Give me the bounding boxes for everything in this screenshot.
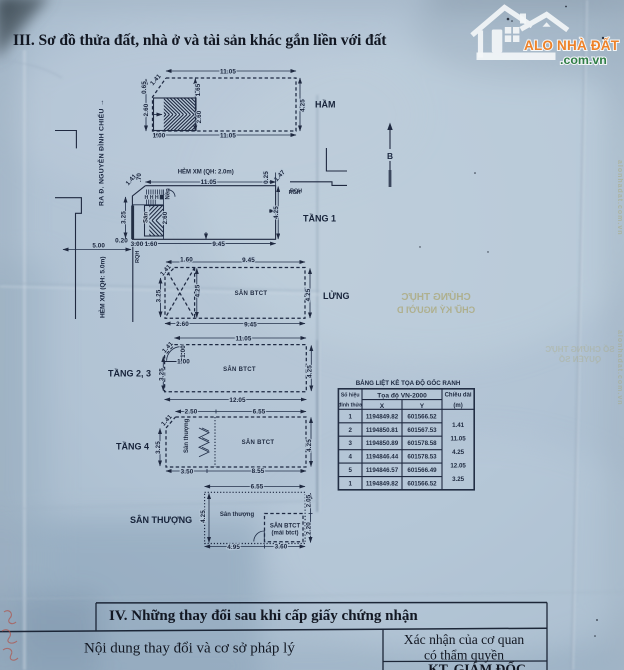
svg-text:SÂN BTCT: SÂN BTCT: [270, 523, 301, 530]
svg-text:1.60: 1.60: [145, 241, 158, 248]
svg-text:3.25: 3.25: [156, 289, 163, 302]
svg-text:1194846.44: 1194846.44: [366, 454, 399, 461]
svg-text:3.25: 3.25: [452, 476, 465, 483]
svg-text:9.45: 9.45: [244, 321, 257, 328]
svg-text:0.65: 0.65: [141, 81, 148, 94]
svg-text:1: 1: [348, 481, 352, 488]
svg-text:.com.vn: .com.vn: [560, 53, 607, 67]
svg-text:3.60: 3.60: [275, 544, 288, 551]
svg-text:11.05: 11.05: [220, 69, 236, 76]
svg-text:4.25: 4.25: [300, 99, 307, 112]
svg-text:6.55: 6.55: [251, 484, 264, 491]
svg-text:CHỮ KÝ NGƯỜI D: CHỮ KÝ NGƯỜI D: [396, 304, 475, 315]
svg-text:RQH: RQH: [135, 251, 141, 263]
svg-text:III. Sơ đồ thửa đất, nhà ở và: III. Sơ đồ thửa đất, nhà ở và tài sản kh…: [13, 32, 387, 49]
svg-text:601578.58: 601578.58: [407, 440, 437, 447]
svg-text:1194849.82: 1194849.82: [366, 413, 399, 420]
svg-text:9.45: 9.45: [212, 241, 225, 248]
svg-text:Chiều dài: Chiều dài: [445, 393, 472, 399]
svg-text:1.65: 1.65: [195, 83, 202, 96]
svg-text:4.25: 4.25: [200, 510, 207, 523]
svg-text:TẦNG 4: TẦNG 4: [116, 442, 149, 452]
svg-text:1194850.89: 1194850.89: [366, 440, 399, 447]
svg-text:1194849.82: 1194849.82: [366, 481, 399, 488]
svg-text:2.60: 2.60: [196, 110, 203, 123]
svg-text:4.25: 4.25: [306, 439, 313, 452]
svg-text:H H H: H H H: [145, 195, 159, 201]
svg-text:RGH: RGH: [289, 190, 301, 196]
svg-text:SỐ CHỨNG THỰC: SỐ CHỨNG THỰC: [545, 344, 614, 354]
svg-text:6.55: 6.55: [253, 408, 266, 415]
svg-text:3.50: 3.50: [181, 469, 194, 476]
svg-text:11.05: 11.05: [201, 179, 217, 186]
svg-text:601566.52: 601566.52: [407, 481, 437, 488]
svg-text:1.00: 1.00: [180, 345, 187, 358]
svg-text:SÂN THƯỢNG: SÂN THƯỢNG: [130, 514, 192, 525]
svg-text:Sân thượng: Sân thượng: [184, 418, 190, 453]
svg-text:HẺM XM (QH: 2.0m): HẺM XM (QH: 2.0m): [178, 169, 234, 176]
svg-text:4.25: 4.25: [306, 365, 313, 378]
svg-text:KT. GIÁM ĐỐC: KT. GIÁM ĐỐC: [428, 660, 526, 670]
svg-text:B: B: [387, 151, 393, 161]
svg-text:Nội dung thay đổi và cơ sở phá: Nội dung thay đổi và cơ sở pháp lý: [84, 641, 295, 657]
svg-text:CHỨNG THỰC: CHỨNG THỰC: [401, 290, 470, 303]
svg-text:4.25: 4.25: [273, 206, 280, 219]
svg-text:ALO NHÀ ĐẤT: ALO NHÀ ĐẤT: [524, 38, 620, 53]
svg-text:X: X: [380, 403, 385, 410]
svg-text:(mái btct): (mái btct): [272, 531, 299, 537]
svg-text:3.25: 3.25: [121, 211, 128, 224]
svg-text:8.55: 8.55: [252, 468, 265, 475]
svg-text:LỬNG: LỬNG: [323, 290, 349, 301]
svg-text:11.05: 11.05: [236, 335, 252, 342]
svg-text:có thẩm quyền: có thẩm quyền: [424, 648, 504, 663]
svg-text:12.05: 12.05: [450, 462, 466, 469]
svg-text:1.60: 1.60: [180, 257, 193, 264]
svg-text:Xác nhận của cơ quan: Xác nhận của cơ quan: [404, 632, 525, 647]
svg-text:BẢNG LIỆT KÊ TỌA ĐỘ GỐC RANH: BẢNG LIỆT KÊ TỌA ĐỘ GỐC RANH: [356, 379, 461, 387]
svg-text:2.60: 2.60: [162, 211, 169, 224]
svg-text:5: 5: [348, 467, 352, 474]
svg-text:5.00: 5.00: [92, 243, 105, 250]
svg-text:Số hiệu: Số hiệu: [341, 392, 360, 399]
svg-text:601567.53: 601567.53: [407, 427, 437, 434]
svg-text:0.25: 0.25: [263, 171, 270, 184]
svg-text:3.25: 3.25: [158, 368, 165, 381]
svg-text:Tọa độ VN-2000: Tọa độ VN-2000: [377, 393, 427, 400]
svg-text:9.45: 9.45: [242, 257, 255, 264]
svg-text:4.95: 4.95: [227, 544, 240, 551]
svg-text:1194850.81: 1194850.81: [366, 427, 399, 434]
svg-text:601578.53: 601578.53: [407, 454, 437, 461]
svg-text:3.25: 3.25: [155, 441, 162, 454]
svg-text:HẺM XM (QH: 5.0m): HẺM XM (QH: 5.0m): [98, 256, 107, 318]
svg-text:2.60: 2.60: [176, 321, 189, 328]
svg-text:RA Đ. NGUYỄN ĐÌNH CHIỂU →: RA Đ. NGUYỄN ĐÌNH CHIỂU →: [96, 99, 105, 206]
svg-text:2.20: 2.20: [306, 522, 313, 535]
svg-text:601566.49: 601566.49: [407, 467, 437, 474]
svg-text:2.50: 2.50: [185, 408, 198, 415]
svg-text:2.05: 2.05: [306, 494, 313, 507]
svg-text:.70: .70: [136, 173, 143, 182]
svg-text:2.60: 2.60: [143, 103, 150, 116]
svg-text:đỉnh thửa: đỉnh thửa: [338, 403, 362, 409]
svg-text:12.05: 12.05: [229, 397, 246, 404]
svg-text:4.25: 4.25: [195, 284, 202, 297]
svg-text:Y: Y: [420, 403, 425, 410]
svg-text:2: 2: [348, 427, 352, 434]
svg-text:3: 3: [348, 440, 352, 447]
svg-text:QUYỂN SỐ: QUYỂN SỐ: [559, 354, 601, 364]
svg-text:3.00: 3.00: [131, 241, 144, 248]
svg-text:1194846.57: 1194846.57: [366, 467, 399, 474]
svg-text:HẦM: HẦM: [315, 100, 336, 110]
svg-text:0.20: 0.20: [115, 238, 128, 245]
svg-text:1: 1: [348, 413, 352, 420]
svg-text:1.00: 1.00: [177, 359, 190, 366]
svg-text:4: 4: [348, 454, 352, 461]
svg-text:Sân thượng: Sân thượng: [220, 512, 255, 518]
svg-text:Sân: Sân: [143, 212, 149, 223]
svg-text:alonhadat.com.vn: alonhadat.com.vn: [616, 160, 623, 236]
svg-text:1.00: 1.00: [153, 132, 166, 139]
svg-text:(m): (m): [453, 403, 462, 409]
svg-text:1.41: 1.41: [452, 422, 465, 429]
svg-text:TẦNG 2, 3: TẦNG 2, 3: [108, 369, 151, 379]
svg-text:601566.52: 601566.52: [407, 413, 437, 420]
svg-text:TẦNG 1: TẦNG 1: [303, 214, 336, 224]
svg-text:SÂN BTCT: SÂN BTCT: [235, 290, 268, 297]
svg-text:SÂN BTCT: SÂN BTCT: [223, 366, 256, 373]
svg-text:4.25: 4.25: [305, 288, 312, 301]
svg-text:11.05: 11.05: [451, 435, 467, 442]
svg-text:alonhadat.com.vn: alonhadat.com.vn: [616, 330, 623, 406]
svg-text:IV. Những thay đổi sau khi cấp: IV. Những thay đổi sau khi cấp giấy chứn…: [109, 608, 418, 624]
svg-text:4.25: 4.25: [452, 449, 465, 456]
svg-text:SÂN BTCT: SÂN BTCT: [242, 439, 275, 446]
svg-text:11.05: 11.05: [220, 132, 236, 139]
